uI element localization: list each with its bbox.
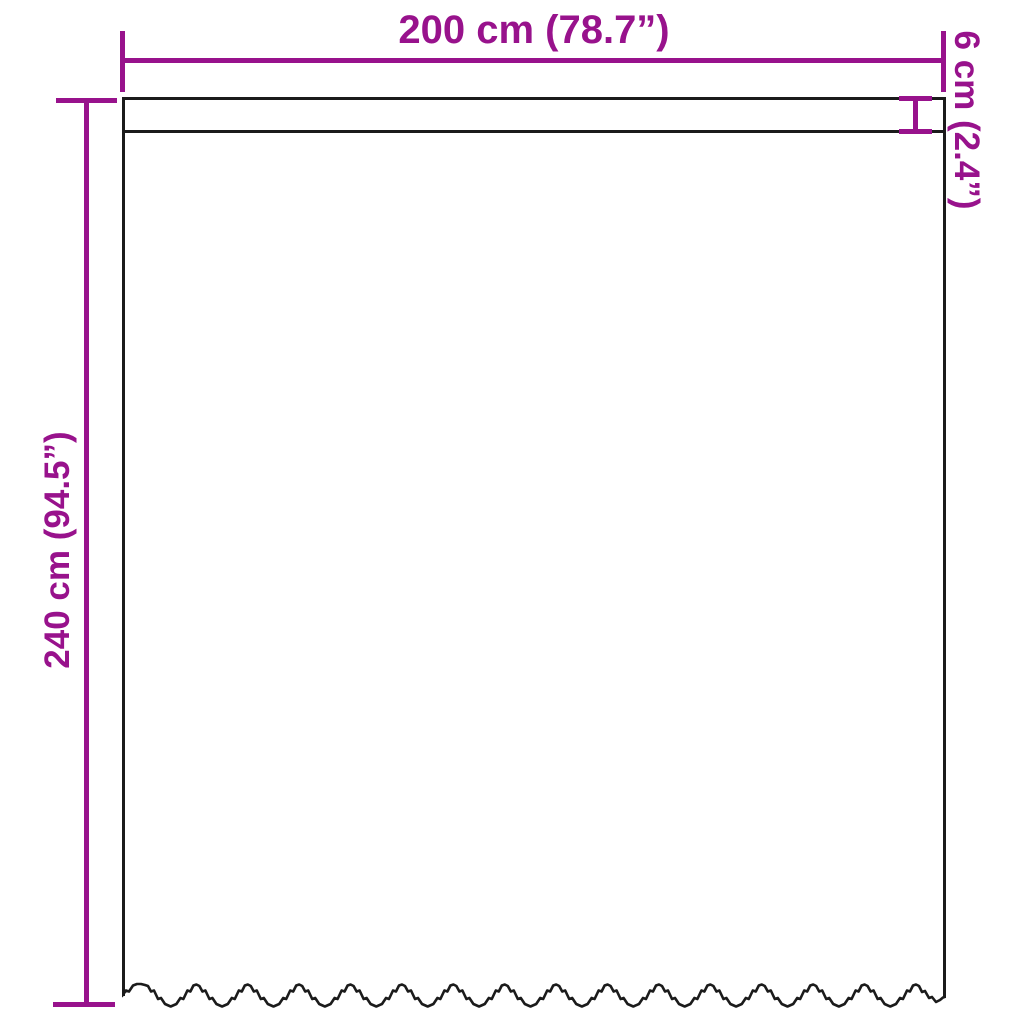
height-dimension-tick-bottom	[53, 1002, 115, 1007]
curtain-header-seam	[122, 130, 946, 133]
height-dimension-line	[84, 100, 89, 1007]
width-dimension-label: 200 cm (78.7”)	[234, 6, 834, 54]
header-dimension-label: 6 cm (2.4”)	[944, 0, 988, 270]
dimension-diagram: 200 cm (78.7”) 240 cm (94.5”) 6 cm (2.4”…	[0, 0, 1024, 1024]
height-dimension-tick-top	[56, 98, 117, 103]
curtain-top-edge	[122, 97, 946, 100]
width-dimension-line	[122, 58, 946, 63]
width-dimension-tick-left	[120, 31, 125, 92]
scalloped-hem-path	[122, 984, 946, 1007]
header-dimension-connector	[913, 96, 918, 134]
height-dimension-label: 240 cm (94.5”)	[36, 350, 80, 750]
curtain-left-edge	[122, 97, 125, 996]
curtain-scalloped-hem	[122, 981, 946, 1015]
